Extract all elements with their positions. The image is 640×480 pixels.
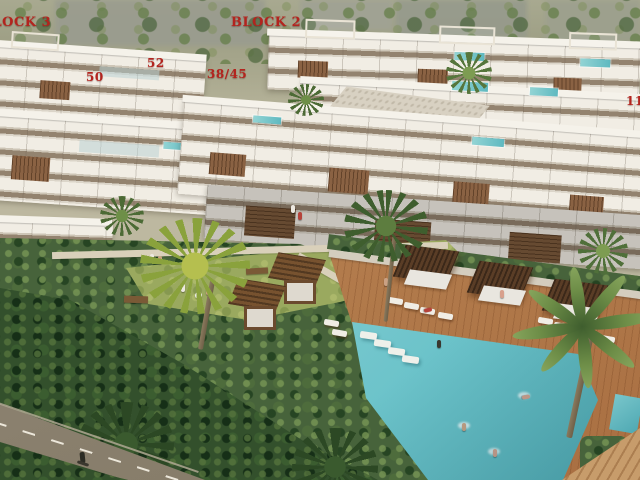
balcony-pool — [253, 115, 281, 124]
roof-pergola — [11, 31, 60, 51]
label-unit-11: 11 — [626, 94, 640, 108]
palm-tree — [446, 52, 492, 94]
wood-slat-panel — [209, 152, 247, 177]
rooftop-pool — [530, 87, 558, 96]
balcony-pool — [580, 58, 610, 67]
person-figure — [500, 290, 504, 298]
bicycle — [77, 460, 89, 467]
roof-pergola — [439, 25, 496, 45]
label-unit-50: 50 — [86, 70, 104, 84]
cyclist — [76, 452, 90, 470]
palm-tree — [120, 218, 270, 348]
label-unit-52: 52 — [147, 56, 165, 70]
label-unit-38-45: 38/45 — [207, 67, 247, 81]
wood-slat-panel — [11, 155, 51, 182]
person-figure — [291, 205, 295, 213]
label-block-2: BLOCK 2 — [231, 15, 301, 30]
roof-pergola — [569, 32, 618, 51]
palm-crown — [140, 218, 250, 314]
roof-pergola — [305, 19, 356, 40]
palm-tree — [330, 190, 440, 330]
glass-balcony — [79, 140, 160, 158]
in-pool-lounger — [402, 355, 420, 364]
aerial-render-apartment-complex: BLOCK 3 BLOCK 2 50 52 38/45 11 — [0, 0, 640, 480]
label-block-3: BLOCK 3 — [0, 15, 51, 30]
palm-crown — [344, 190, 428, 262]
swimmer-figure — [462, 423, 466, 431]
balcony-pool — [472, 137, 505, 147]
swimmer-figure — [493, 449, 497, 457]
palm-tree — [288, 84, 324, 116]
cabana-interior — [284, 280, 316, 304]
large-palm-tree — [512, 262, 640, 442]
person-figure — [298, 212, 302, 220]
swimmer-figure — [437, 340, 441, 348]
wood-slat-panel — [39, 80, 70, 100]
